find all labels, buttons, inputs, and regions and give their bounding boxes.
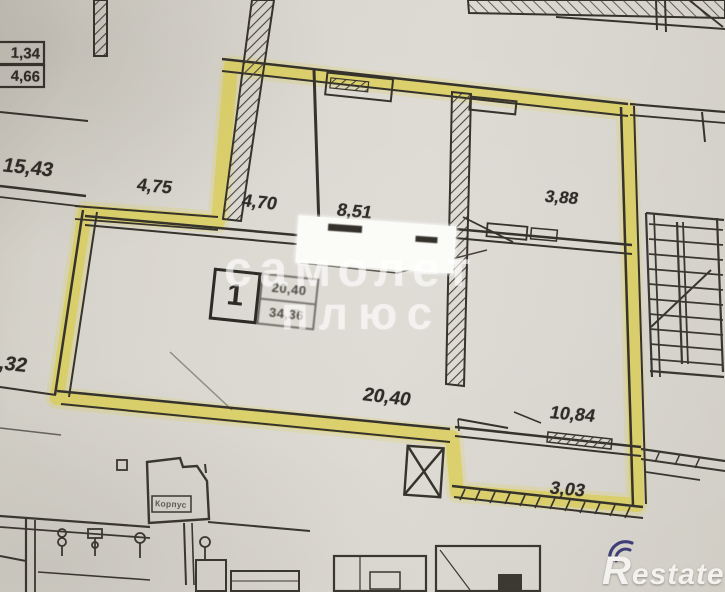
dimension-label: 10,84 xyxy=(548,402,598,427)
dimension-label: 3,03 xyxy=(548,478,588,502)
restate-logo: Restate xyxy=(588,541,725,591)
watermark-line2: плюс xyxy=(281,286,442,340)
dimension-label: 4,75 xyxy=(135,175,175,199)
lobby-box-label: Корпус xyxy=(155,498,187,510)
restate-logo-text: Restate xyxy=(602,549,725,592)
floorplan-scan: 1,34 4,66 15,43 4,75 4,70 8,51 3,88 0,32… xyxy=(0,0,725,592)
redaction-smudge xyxy=(328,224,362,233)
dimension-label: 4,66 xyxy=(0,67,40,85)
dimension-label: 3,88 xyxy=(543,187,580,209)
vent-shaft xyxy=(404,446,443,497)
top-right-wall xyxy=(468,0,725,32)
staircase xyxy=(646,213,724,377)
bottom-right-fragments xyxy=(641,449,725,480)
dimension-label: 1,34 xyxy=(0,44,40,62)
dimension-label: 4,70 xyxy=(240,190,280,214)
